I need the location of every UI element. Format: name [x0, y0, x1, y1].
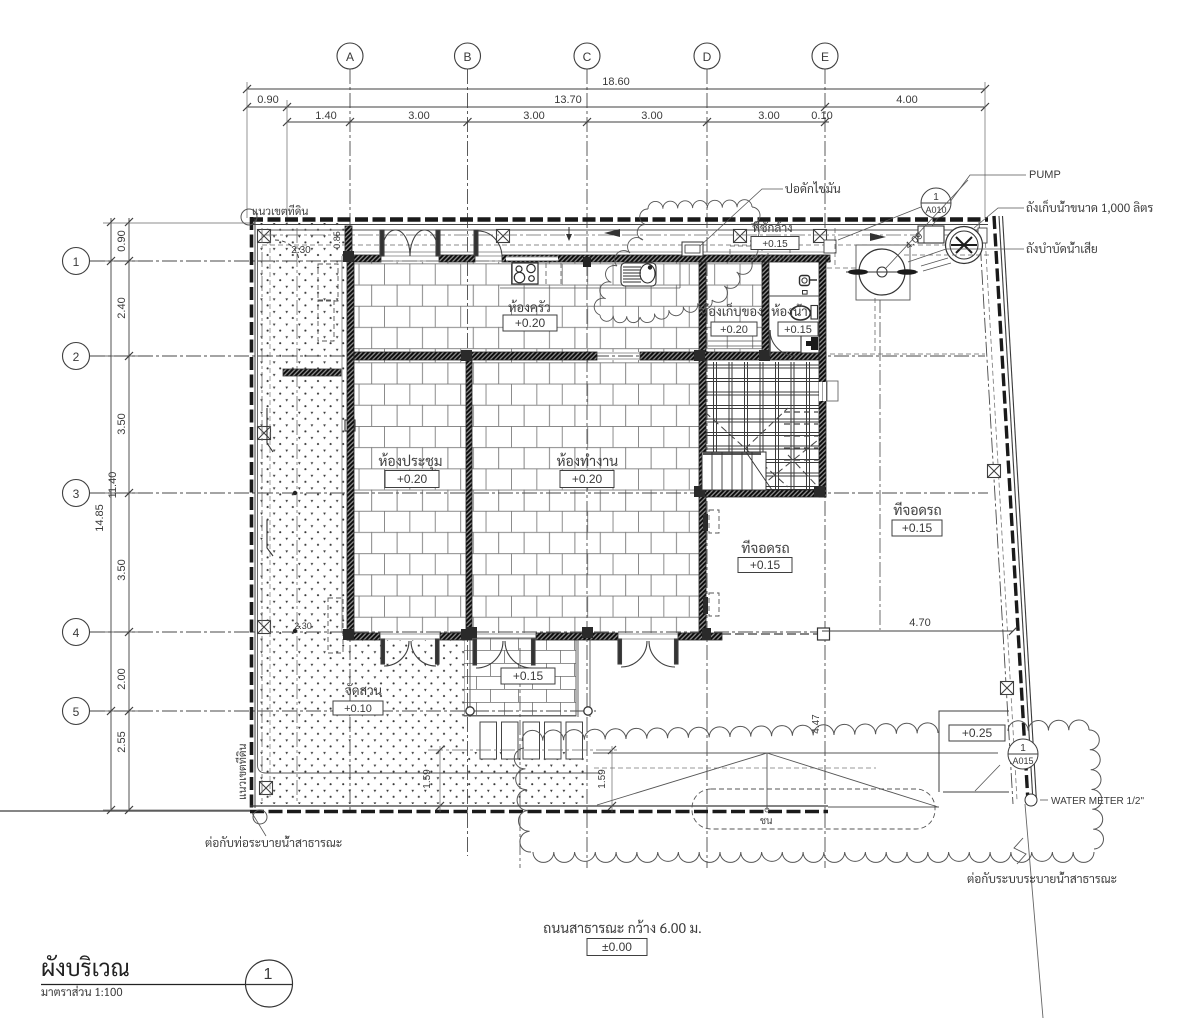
- svg-text:1: 1: [1020, 743, 1026, 754]
- svg-text:D: D: [703, 50, 712, 64]
- svg-text:3.00: 3.00: [758, 110, 779, 122]
- svg-text:B: B: [463, 50, 471, 64]
- svg-text:2: 2: [73, 350, 80, 364]
- svg-text:4.47: 4.47: [811, 714, 822, 734]
- svg-text:1.59: 1.59: [597, 769, 608, 789]
- svg-text:+0.20: +0.20: [515, 316, 546, 330]
- svg-text:+0.20: +0.20: [720, 324, 748, 336]
- svg-text:1: 1: [933, 192, 939, 203]
- svg-text:3.00: 3.00: [523, 110, 544, 122]
- svg-text:3: 3: [73, 487, 80, 501]
- svg-text:E: E: [821, 50, 829, 64]
- svg-text:+0.15: +0.15: [902, 521, 933, 535]
- svg-text:3.00: 3.00: [641, 110, 662, 122]
- svg-text:3.50: 3.50: [116, 413, 128, 434]
- svg-text:C: C: [583, 50, 592, 64]
- svg-text:+0.25: +0.25: [962, 726, 993, 740]
- svg-text:A015: A015: [1012, 756, 1033, 766]
- svg-text:1.59: 1.59: [422, 769, 433, 789]
- svg-text:2.30: 2.30: [294, 621, 312, 631]
- svg-text:0.10: 0.10: [811, 110, 832, 122]
- svg-text:2.00: 2.00: [116, 668, 128, 689]
- svg-text:2.40: 2.40: [116, 297, 128, 318]
- svg-text:3.00: 3.00: [408, 110, 429, 122]
- svg-text:+0.10: +0.10: [344, 703, 372, 715]
- svg-text:18.60: 18.60: [602, 76, 630, 88]
- svg-text:0.90: 0.90: [116, 230, 128, 251]
- svg-text:+0.15: +0.15: [784, 324, 812, 336]
- svg-text:4: 4: [73, 626, 80, 640]
- svg-text:A: A: [346, 50, 354, 64]
- svg-text:±0.00: ±0.00: [602, 940, 632, 954]
- svg-text:11.40: 11.40: [107, 472, 119, 499]
- svg-text:14.85: 14.85: [94, 504, 106, 532]
- svg-text:5: 5: [73, 705, 80, 719]
- svg-text:1: 1: [264, 966, 273, 983]
- svg-text:WATER METER 1/2": WATER METER 1/2": [1051, 796, 1144, 807]
- svg-text:1.40: 1.40: [315, 110, 336, 122]
- svg-text:2.30: 2.30: [291, 245, 311, 256]
- svg-text:0.85: 0.85: [332, 231, 342, 249]
- svg-text:+0.20: +0.20: [572, 472, 603, 486]
- svg-text:+0.15: +0.15: [750, 558, 781, 572]
- svg-text:4.00: 4.00: [896, 94, 917, 106]
- svg-text:13.70: 13.70: [554, 94, 582, 106]
- svg-text:3.50: 3.50: [116, 559, 128, 580]
- svg-text:4.70: 4.70: [909, 617, 930, 629]
- svg-text:+0.15: +0.15: [513, 669, 544, 683]
- svg-text:0.90: 0.90: [257, 94, 278, 106]
- svg-text:1: 1: [73, 255, 80, 269]
- svg-text:+0.20: +0.20: [397, 472, 428, 486]
- svg-text:PUMP: PUMP: [1029, 169, 1061, 181]
- svg-text:+0.15: +0.15: [762, 239, 788, 250]
- svg-text:2.55: 2.55: [116, 731, 128, 752]
